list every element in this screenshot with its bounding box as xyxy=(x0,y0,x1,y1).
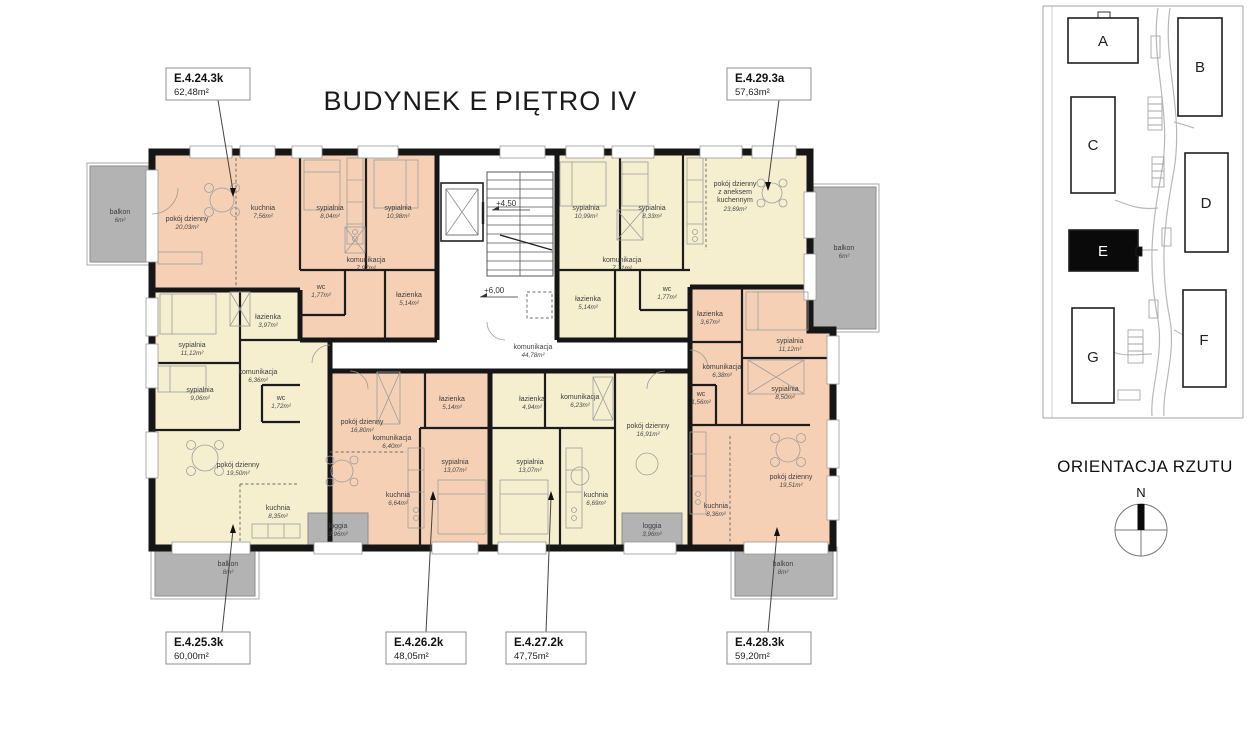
room-label: łazienka5,14m² xyxy=(575,296,601,311)
site-label-C: C xyxy=(1088,137,1099,154)
site-label-A: A xyxy=(1098,33,1108,50)
svg-text:60,00m²: 60,00m² xyxy=(174,651,209,662)
level-lower: +6,00 xyxy=(484,286,505,295)
room-label: sypialnia8,33m² xyxy=(638,205,665,220)
site-label-B: B xyxy=(1195,59,1205,76)
site-plan: A B C D E F G xyxy=(1043,6,1243,418)
room-label: sypialnia11,12m² xyxy=(776,338,803,353)
compass-title: ORIENTACJA RZUTU xyxy=(1057,457,1233,476)
central-corridor xyxy=(330,340,690,371)
room-label: łazienka4,94m² xyxy=(519,396,545,411)
svg-text:47,75m²: 47,75m² xyxy=(514,651,549,662)
room-label: sypialnia11,12m² xyxy=(178,342,205,357)
compass-rose-icon xyxy=(1115,504,1167,556)
elevator-icon xyxy=(441,183,483,241)
room-label: sypialnia13,07m² xyxy=(516,459,543,474)
room-label: łazienka5,14m² xyxy=(439,396,465,411)
room-label: sypialnia9,06m² xyxy=(186,387,213,402)
page-title-building: BUDYNEK E xyxy=(323,86,488,116)
site-label-F: F xyxy=(1199,332,1208,349)
svg-text:E.4.24.3k: E.4.24.3k xyxy=(174,73,224,85)
svg-text:E.4.29.3a: E.4.29.3a xyxy=(735,73,785,85)
page-title-floor: PIĘTRO IV xyxy=(495,86,638,116)
room-label: sypialnia8,50m² xyxy=(771,386,798,401)
svg-text:E.4.25.3k: E.4.25.3k xyxy=(174,637,224,649)
room-label: kuchnia7,56m² xyxy=(251,205,275,220)
room-label: łazienka5,14m² xyxy=(396,292,422,307)
room-label: loggia3,96m² xyxy=(328,523,349,538)
room-label: sypialnia8,04m² xyxy=(316,205,343,220)
room-label: kuchnia8,35m² xyxy=(266,505,290,520)
site-label-D: D xyxy=(1201,195,1212,212)
site-label-E: E xyxy=(1098,243,1108,260)
svg-text:E.4.28.3k: E.4.28.3k xyxy=(735,637,785,649)
site-label-G: G xyxy=(1087,349,1099,366)
site-small-structures xyxy=(1118,36,1171,400)
floor-plan-page: pokój dzienny20,03m² kuchnia7,56m² sypia… xyxy=(0,0,1250,754)
svg-text:57,63m²: 57,63m² xyxy=(735,87,770,98)
room-label: kuchnia8,36m² xyxy=(704,503,728,518)
level-upper: +4,50 xyxy=(496,199,517,208)
svg-text:59,20m²: 59,20m² xyxy=(735,651,770,662)
room-label: sypialnia10,99m² xyxy=(572,205,599,220)
room-label: łazienka3,67m² xyxy=(697,311,723,326)
compass: ORIENTACJA RZUTU N xyxy=(1057,457,1233,556)
room-label: loggia3,96m² xyxy=(642,523,663,538)
room-label: sypialnia13,07m² xyxy=(441,459,468,474)
floor-plan: pokój dzienny20,03m² kuchnia7,56m² sypia… xyxy=(87,68,879,664)
room-label: kuchnia6,64m² xyxy=(386,492,410,507)
svg-text:E.4.26.2k: E.4.26.2k xyxy=(394,637,444,649)
room-label: kuchnia6,69m² xyxy=(584,492,608,507)
svg-text:E.4.27.2k: E.4.27.2k xyxy=(514,637,564,649)
room-label: sypialnia10,98m² xyxy=(384,205,411,220)
room-label: łazienka3,97m² xyxy=(255,314,281,329)
compass-north-label: N xyxy=(1136,485,1145,500)
svg-text:48,05m²: 48,05m² xyxy=(394,651,429,662)
drawing: pokój dzienny20,03m² kuchnia7,56m² sypia… xyxy=(0,0,1250,754)
balcony-bottom-left xyxy=(155,550,255,596)
svg-text:62,48m²: 62,48m² xyxy=(174,87,209,98)
